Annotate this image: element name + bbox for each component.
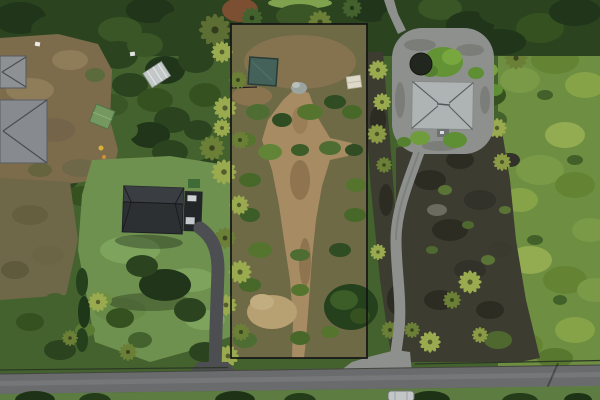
right-house-roof	[412, 81, 474, 129]
teal-shed	[248, 57, 278, 86]
small-green-shed	[188, 179, 200, 188]
yellow-object	[99, 146, 104, 151]
vacant-lot	[230, 24, 378, 358]
white-tarp	[346, 75, 362, 89]
white-speck	[35, 42, 41, 47]
aerial-photo	[0, 0, 600, 400]
water-tank	[410, 53, 432, 75]
parked-car	[388, 391, 414, 400]
large-tree	[324, 284, 378, 330]
left-lower-roof	[0, 100, 47, 163]
left-upper-roof	[0, 56, 26, 88]
left-scrub	[0, 178, 78, 300]
